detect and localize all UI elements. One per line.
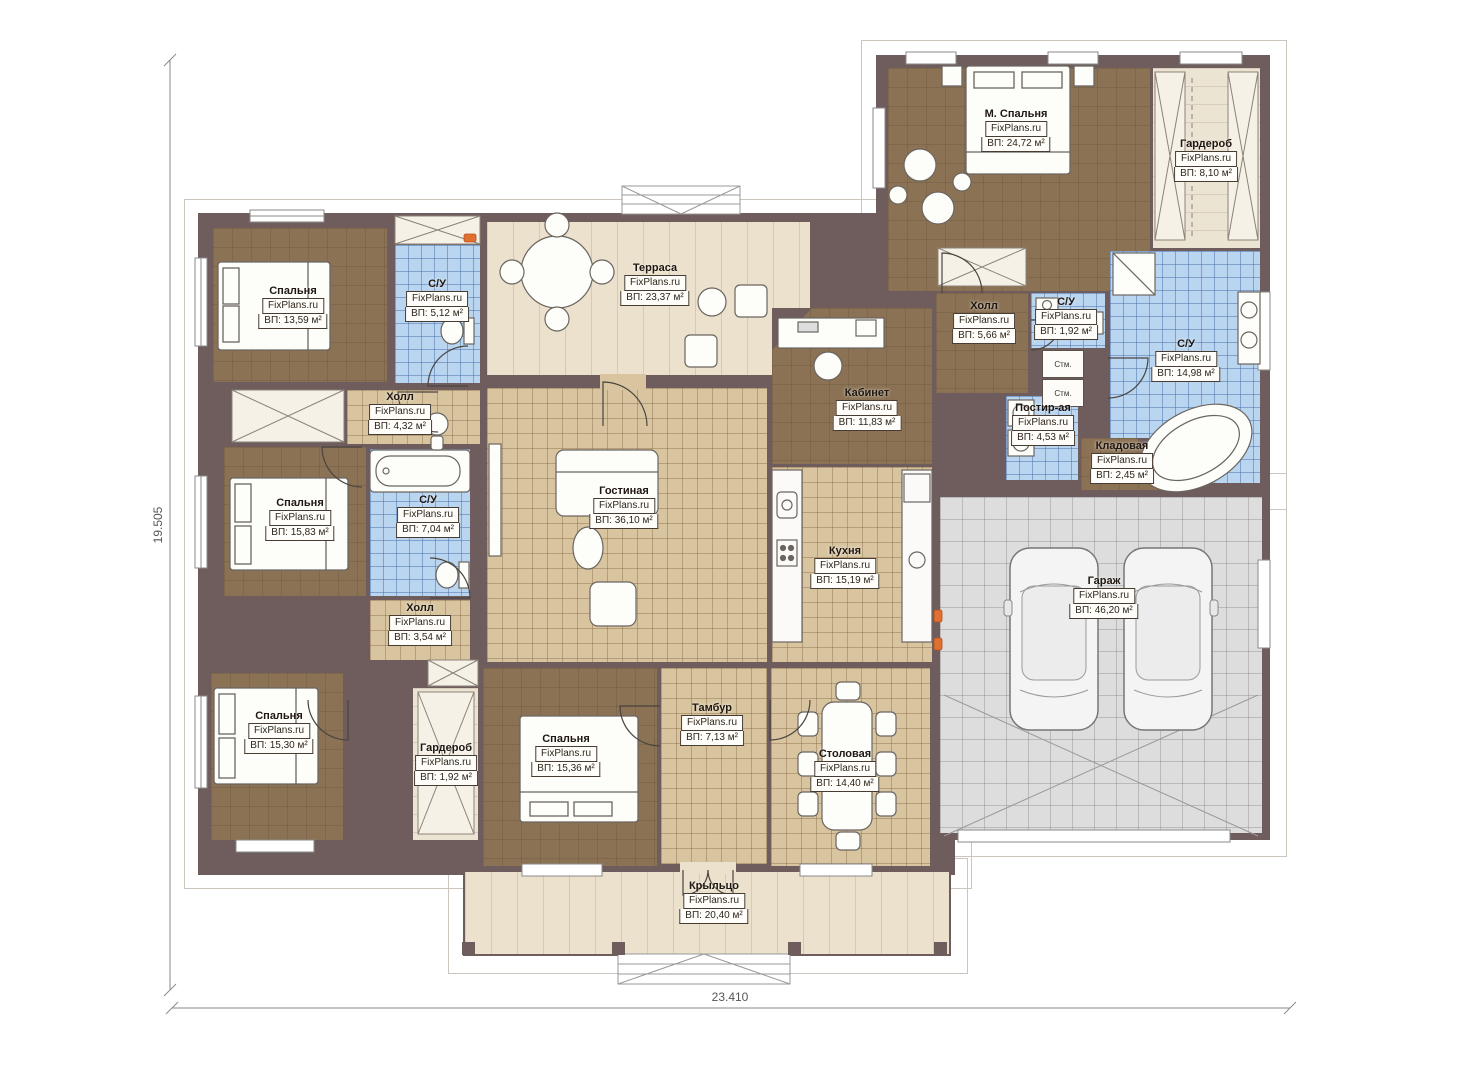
room-garage: [940, 497, 1262, 833]
room-bedroom-middle-left: [224, 447, 366, 596]
room-bedroom-bottom-left: [211, 673, 343, 840]
room-wardrobe-bottom: [413, 688, 478, 840]
room-dining-room: [771, 668, 930, 866]
room-terrace: [487, 222, 810, 375]
room-hall-middle: [347, 390, 480, 444]
room-bathroom-middle: [370, 449, 470, 596]
room-storage: [1081, 438, 1165, 490]
room-bathroom-top-left: [395, 245, 480, 383]
washer-label-text: Стм.: [1054, 389, 1071, 398]
room-porch: [465, 872, 949, 954]
room-living-room: [487, 388, 767, 662]
washer-label-text: Стм.: [1054, 360, 1071, 369]
dimension-bottom-label: 23.410: [712, 990, 749, 1004]
room-wardrobe-top-right: [1153, 68, 1260, 248]
room-hall-top-right: [936, 293, 1028, 393]
room-hall-bottom-left: [370, 600, 470, 660]
room-office: [772, 308, 932, 464]
room-vestibule: [661, 668, 767, 864]
washer-label: Стм.: [1042, 379, 1084, 407]
room-bedroom-top-left: [213, 228, 387, 382]
room-bathroom-small: [1031, 293, 1105, 348]
washer-label: Стм.: [1042, 350, 1084, 378]
dimension-left-label: 19.505: [151, 507, 165, 544]
room-laundry: [1006, 396, 1078, 480]
floor-plan-canvas: Стм. Стм. СпальняFixPlans.ruВП: 13,59 м²…: [0, 0, 1474, 1080]
room-bedroom-bottom-center: [483, 668, 657, 866]
room-kitchen: [772, 467, 932, 662]
